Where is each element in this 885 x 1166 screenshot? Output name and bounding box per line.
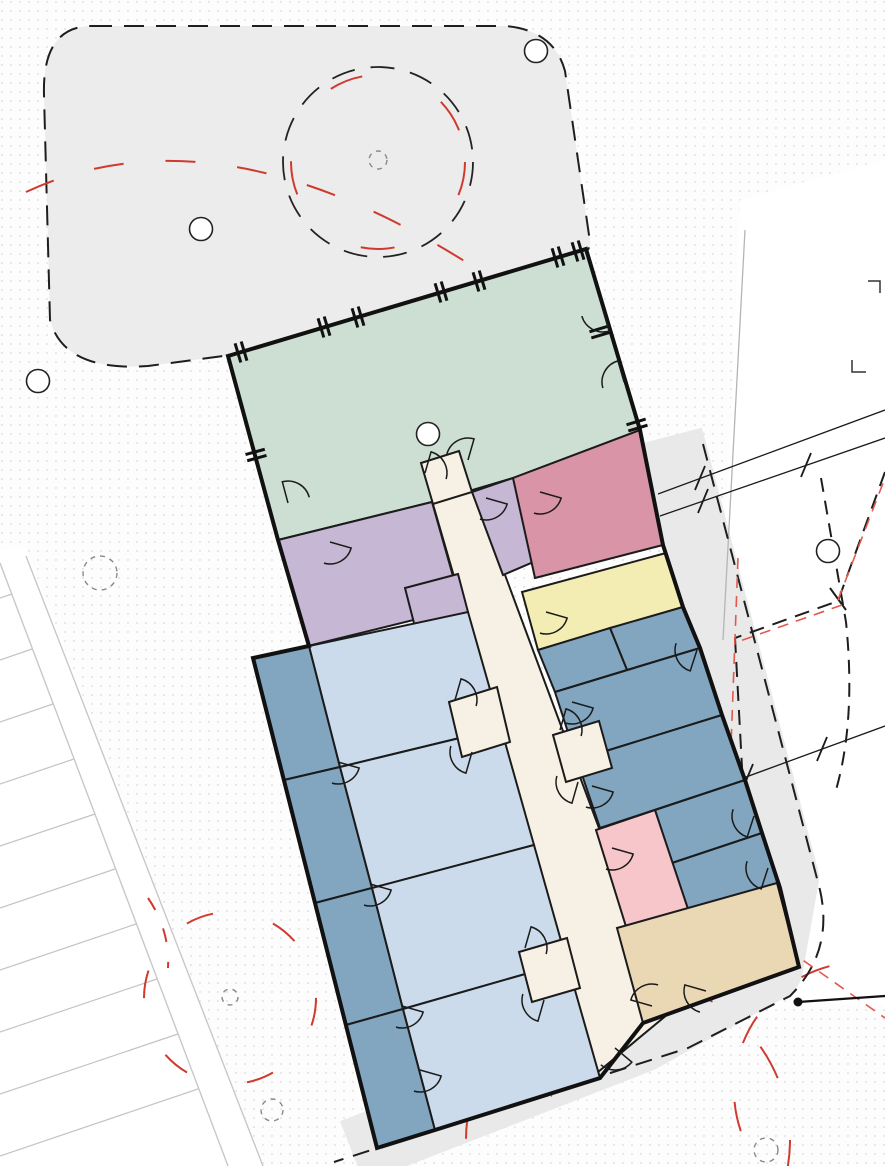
floor-plan-page (0, 0, 885, 1166)
floor-plan-drawing (0, 0, 885, 1166)
